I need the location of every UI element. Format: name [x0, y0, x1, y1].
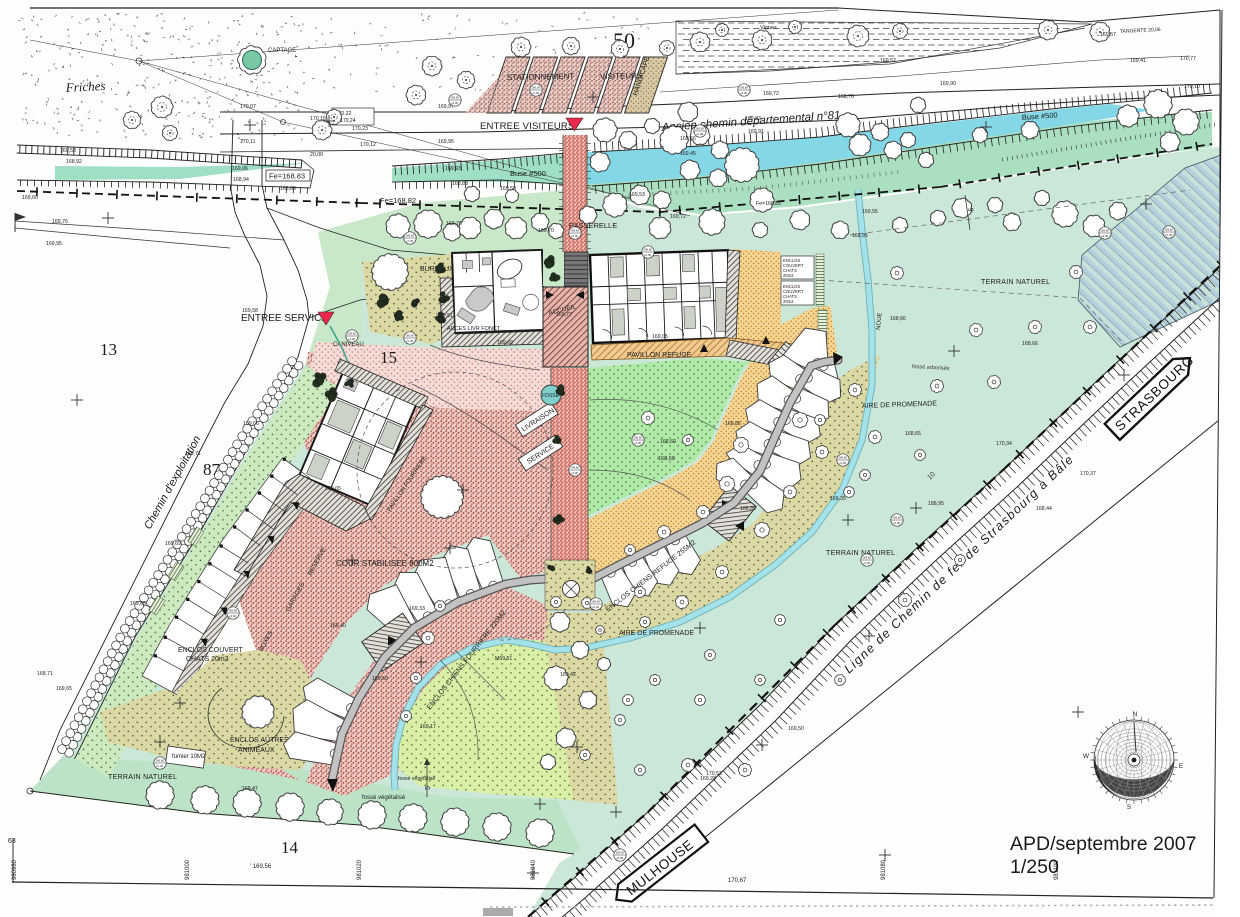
svg-text:169,05: 169,05: [652, 334, 668, 340]
svg-text:169,58: 169,58: [242, 308, 258, 314]
svg-text:169,41: 169,41: [1130, 58, 1146, 64]
svg-text:169,60: 169,60: [615, 851, 624, 855]
svg-text:168,71: 168,71: [37, 671, 53, 677]
svg-text:170,07: 170,07: [240, 104, 256, 110]
svg-text:W: W: [1083, 753, 1090, 760]
svg-text:168,85: 168,85: [725, 421, 741, 427]
svg-text:186,85: 186,85: [740, 506, 756, 512]
svg-text:fumier 10M2: fumier 10M2: [172, 754, 206, 760]
svg-text:169,60: 169,60: [228, 609, 237, 613]
svg-text:169,60: 169,60: [838, 456, 847, 460]
svg-text:CHATS 20m2: CHATS 20m2: [186, 656, 229, 663]
svg-text:169,42: 169,42: [560, 672, 576, 678]
svg-text:981020: 981020: [357, 859, 363, 880]
svg-text:169,60: 169,60: [633, 436, 642, 440]
svg-text:TERRAIN NATUREL: TERRAIN NATUREL: [108, 774, 177, 781]
svg-text:169,60: 169,60: [570, 229, 579, 233]
svg-text:+0,00: +0,00: [1101, 234, 1109, 238]
svg-text:169,76: 169,76: [52, 219, 68, 225]
svg-text:168,95: 168,95: [852, 233, 868, 239]
svg-text:169,17: 169,17: [420, 724, 436, 730]
svg-text:170,77: 170,77: [1180, 56, 1196, 62]
svg-text:20,00: 20,00: [310, 152, 323, 158]
svg-text:169,60: 169,60: [405, 234, 414, 238]
svg-text:170,37: 170,37: [1080, 471, 1096, 477]
svg-text:S: S: [1127, 804, 1132, 811]
svg-text:169,45: 169,45: [680, 151, 696, 157]
svg-text:169,60: 169,60: [405, 334, 414, 338]
svg-text:14: 14: [281, 838, 299, 857]
svg-text:169,93: 169,93: [445, 166, 461, 172]
svg-text:168,83: 168,83: [452, 181, 468, 187]
svg-text:+0,00: +0,00: [863, 561, 871, 565]
svg-text:TERRAIN NATUREL: TERRAIN NATUREL: [826, 550, 895, 557]
svg-text:169,91: 169,91: [748, 129, 764, 135]
svg-text:168,66: 168,66: [890, 316, 906, 322]
svg-text:CAPTAGE: CAPTAGE: [268, 48, 296, 54]
svg-text:169,95: 169,95: [438, 139, 454, 145]
svg-text:169,77: 169,77: [556, 312, 572, 318]
svg-text:168,60: 168,60: [658, 456, 675, 462]
svg-text:981080: 981080: [881, 859, 887, 880]
svg-text:169,60: 169,60: [862, 556, 871, 560]
svg-text:169,66: 169,66: [243, 421, 259, 427]
svg-text:169,33: 169,33: [409, 606, 425, 612]
svg-text:169,70: 169,70: [538, 228, 554, 234]
svg-text:1/250: 1/250: [1010, 856, 1059, 878]
svg-text:169,40: 169,40: [330, 623, 346, 629]
svg-text:168,76: 168,76: [838, 94, 854, 100]
svg-text:CANIVEAU: CANIVEAU: [333, 342, 364, 348]
svg-text:981040: 981040: [531, 859, 537, 880]
svg-text:TERRAIN NATUREL: TERRAIN NATUREL: [981, 279, 1050, 286]
svg-text:170,67: 170,67: [728, 878, 747, 884]
svg-text:+0,00: +0,00: [451, 101, 459, 105]
svg-text:169,90: 169,90: [940, 81, 956, 87]
svg-text:169,70: 169,70: [446, 221, 462, 227]
svg-text:169,50: 169,50: [788, 726, 804, 732]
svg-text:Fe=168,82: Fe=168,82: [756, 201, 781, 207]
svg-text:ENCLOS AUTRES: ENCLOS AUTRES: [230, 737, 289, 744]
svg-text:PAVILLON REFUGE: PAVILLON REFUGE: [627, 352, 692, 359]
svg-text:170,12: 170,12: [360, 142, 376, 148]
svg-text:170,53: 170,53: [706, 771, 722, 777]
svg-text:20m2: 20m2: [783, 273, 794, 278]
svg-text:63: 63: [8, 838, 16, 845]
svg-text:+0,00: +0,00: [839, 461, 847, 465]
svg-text:169,55: 169,55: [862, 209, 878, 215]
svg-text:168,92: 168,92: [66, 159, 82, 165]
svg-text:M69,51: M69,51: [495, 656, 512, 662]
svg-text:+0,00: +0,00: [571, 234, 579, 238]
svg-text:ENTREE VISITEURS: ENTREE VISITEURS: [480, 121, 575, 132]
svg-text:+0,00: +0,00: [893, 521, 901, 525]
svg-text:170,23: 170,23: [352, 126, 368, 132]
svg-text:169,83: 169,83: [745, 116, 761, 122]
svg-text:Buse #500: Buse #500: [510, 169, 546, 178]
svg-text:169,06: 169,06: [232, 166, 248, 172]
svg-text:+0,00: +0,00: [592, 605, 600, 609]
svg-text:+0,00: +0,00: [229, 614, 237, 618]
svg-text:169,60: 169,60: [22, 195, 38, 201]
svg-text:169,60: 169,60: [1164, 228, 1173, 232]
svg-text:169,69: 169,69: [165, 541, 181, 547]
svg-text:169,60: 169,60: [643, 248, 652, 252]
svg-text:169,72: 169,72: [763, 91, 779, 97]
svg-text:169,72: 169,72: [670, 214, 686, 220]
svg-text:169,35: 169,35: [830, 496, 846, 502]
svg-text:169,71: 169,71: [185, 451, 201, 457]
svg-text:169,60: 169,60: [739, 86, 748, 90]
svg-text:169,65: 169,65: [56, 686, 72, 692]
svg-text:169,60: 169,60: [1100, 229, 1109, 233]
svg-text:+0,00: +0,00: [571, 471, 579, 475]
svg-text:'169,47: '169,47: [241, 786, 258, 792]
svg-text:169,60: 169,60: [450, 96, 459, 100]
svg-text:168,94: 168,94: [233, 177, 249, 183]
svg-text:Fe=168.83: Fe=168.83: [269, 172, 305, 181]
svg-text:169,60: 169,60: [155, 759, 164, 763]
svg-text:+0,00: +0,00: [406, 339, 414, 343]
svg-text:87: 87: [203, 460, 221, 479]
svg-text:170,11: 170,11: [240, 139, 256, 145]
svg-text:980980: 980980: [12, 859, 18, 880]
svg-text:+0,00: +0,00: [740, 91, 748, 95]
svg-text:169,65: 169,65: [325, 486, 341, 492]
svg-text:FOSSE: FOSSE: [542, 393, 560, 399]
svg-text:+0,00: +0,00: [644, 253, 652, 257]
svg-text:'169,51: '169,51: [436, 313, 453, 319]
svg-text:169,60: 169,60: [347, 332, 356, 336]
svg-text:+0,00: +0,00: [348, 337, 356, 341]
svg-text:+0,00: +0,00: [616, 856, 624, 860]
svg-text:169,56: 169,56: [680, 136, 696, 142]
svg-text:169,53: 169,53: [629, 192, 645, 198]
svg-text:ACCES LIVR FONCT: ACCES LIVR FONCT: [447, 326, 501, 332]
svg-text:169,60: 169,60: [591, 600, 600, 604]
svg-text:+0,00: +0,00: [696, 132, 704, 136]
svg-text:169,60: 169,60: [531, 86, 540, 90]
svg-text:ANIMEAUX: ANIMEAUX: [238, 747, 275, 754]
svg-text:169,65: 169,65: [130, 601, 146, 607]
svg-text:fossé végétalisé: fossé végétalisé: [362, 795, 406, 801]
svg-text:E: E: [1179, 763, 1184, 770]
svg-text:Fe=168,82: Fe=168,82: [380, 196, 416, 205]
svg-text:AIRE DE PROMENADE: AIRE DE PROMENADE: [619, 630, 694, 637]
svg-text:' 169,56: ' 169,56: [250, 864, 272, 870]
svg-text:170,34: 170,34: [996, 441, 1012, 447]
svg-text:Friches: Friches: [64, 78, 105, 95]
svg-text:170,10: 170,10: [1184, 84, 1200, 90]
svg-text:168,44: 168,44: [1036, 506, 1052, 512]
svg-text:+0,00: +0,00: [1165, 233, 1173, 237]
svg-text:STATIONNEMENT: STATIONNEMENT: [507, 72, 575, 82]
svg-text:169,69: 169,69: [497, 340, 513, 346]
svg-text:ENCLOS COUVERT: ENCLOS COUVERT: [178, 647, 244, 654]
svg-text:169,60: 169,60: [892, 516, 901, 520]
svg-text:168,89: 168,89: [280, 186, 296, 192]
svg-text:ENTREE SERVICE: ENTREE SERVICE: [241, 313, 328, 324]
svg-text:VISITEURS: VISITEURS: [600, 71, 642, 81]
svg-text:168,66: 168,66: [1022, 341, 1038, 347]
svg-text:N: N: [1133, 711, 1138, 718]
svg-text:+0,00: +0,00: [156, 764, 164, 768]
svg-text:169,60: 169,60: [570, 466, 579, 470]
svg-text:+0,00: +0,00: [406, 239, 414, 243]
svg-text:169,58: 169,58: [60, 148, 76, 154]
svg-text:13: 13: [100, 340, 117, 359]
svg-text:168,65: 168,65: [905, 431, 921, 437]
svg-text:+0,00: +0,00: [532, 91, 540, 95]
svg-text:981000: 981000: [185, 859, 191, 880]
svg-text:169,57: 169,57: [1100, 32, 1116, 38]
svg-text:fossé végétalisé: fossé végétalisé: [398, 776, 435, 782]
svg-text:169,95: 169,95: [46, 241, 62, 247]
svg-text:169,50: 169,50: [500, 186, 516, 192]
svg-text:168,60: 168,60: [660, 439, 676, 445]
svg-text:169,52: 169,52: [880, 58, 896, 64]
svg-text:15: 15: [380, 348, 397, 367]
svg-text:169,60: 169,60: [372, 676, 388, 682]
svg-text:169,60: 169,60: [695, 127, 704, 131]
svg-text:188,95: 188,95: [928, 501, 944, 507]
svg-text:981100: 981100: [1054, 860, 1060, 880]
svg-text:+0,00: +0,00: [634, 441, 642, 445]
svg-text:20m2: 20m2: [783, 299, 794, 304]
svg-text:APD/septembre 2007: APD/septembre 2007: [1010, 833, 1196, 855]
svg-text:5: 5: [425, 786, 432, 790]
